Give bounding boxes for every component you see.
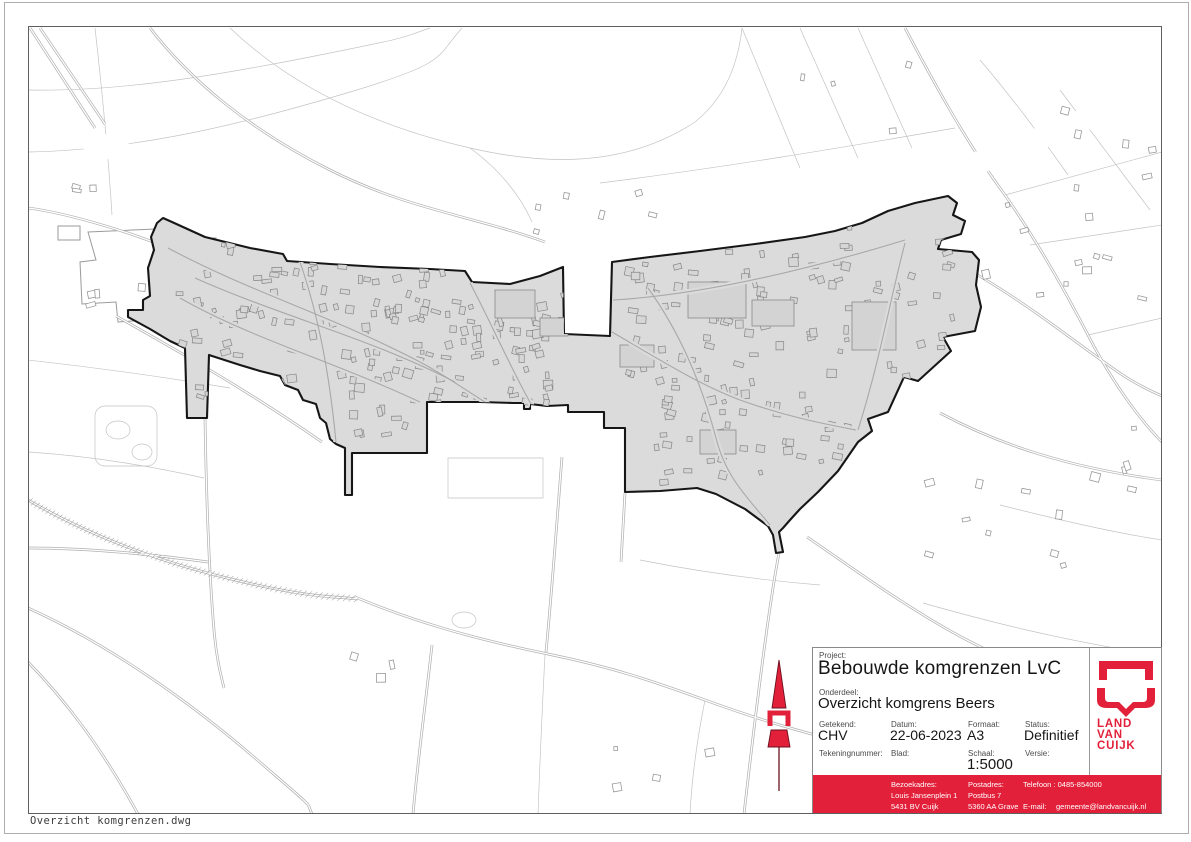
getekend-value: CHV: [818, 727, 848, 743]
datum-value: 22-06-2023: [890, 727, 962, 743]
schaal-value: 1:5000: [967, 756, 1013, 773]
logo-bird-icon: [1097, 688, 1155, 717]
bezoekadres-line1: Louis Jansenplein 1: [891, 791, 957, 800]
logo-text-cuijk: CUIJK: [1097, 741, 1159, 752]
contact-band: Bezoekadres: Louis Jansenplein 1 5431 BV…: [813, 775, 1161, 813]
title-block-divider: [1089, 648, 1090, 775]
versie-label: Versie:: [1025, 749, 1049, 758]
email-label: E-mail:: [1023, 802, 1046, 811]
status-value: Definitief: [1024, 727, 1078, 743]
blad-label: Blad:: [891, 749, 909, 758]
postadres-line2: 5360 AA Grave: [968, 802, 1018, 811]
postadres-label: Postadres:: [968, 780, 1004, 789]
north-arrow-icon: [753, 640, 809, 800]
tekeningnummer-label: Tekeningnummer:: [819, 749, 883, 758]
land-van-cuijk-logo: [1092, 654, 1160, 726]
bezoekadres-line2: 5431 BV Cuijk: [891, 802, 939, 811]
telefoon-text: Telefoon : 0485-854000: [1023, 780, 1102, 789]
drawing-sheet: Project: Bebouwde komgrenzen LvC Onderde…: [0, 0, 1191, 842]
logo-bracket-icon: [1103, 665, 1149, 680]
formaat-value: A3: [967, 727, 984, 743]
project-title: Bebouwde komgrenzen LvC: [818, 658, 1061, 680]
onderdeel-value: Overzicht komgrens Beers: [818, 695, 995, 712]
drawing-filename: Overzicht komgrenzen.dwg: [30, 815, 191, 827]
postadres-line1: Postbus 7: [968, 791, 1001, 800]
bezoekadres-label: Bezoekadres:: [891, 780, 937, 789]
email-value: gemeente@landvancuijk.nl: [1056, 802, 1146, 811]
